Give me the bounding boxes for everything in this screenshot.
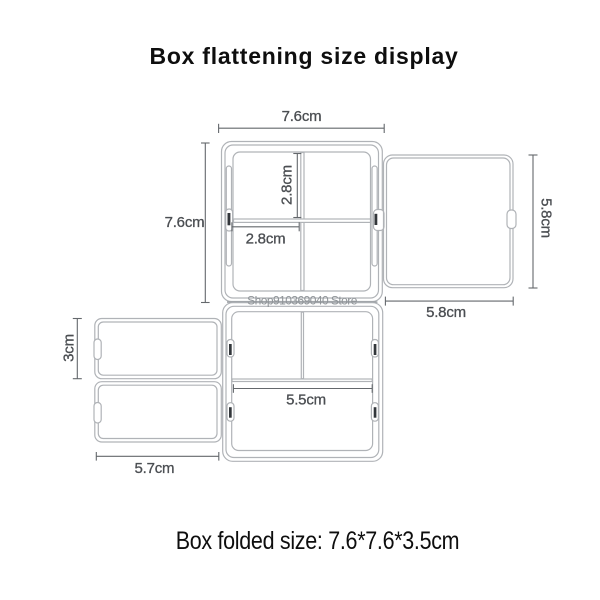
svg-text:3cm: 3cm [61,334,78,362]
svg-text:7.6cm: 7.6cm [165,214,205,231]
svg-text:5.8cm: 5.8cm [426,304,466,321]
svg-text:2.8cm: 2.8cm [246,231,286,248]
svg-text:7.6cm: 7.6cm [282,108,322,125]
svg-text:5.5cm: 5.5cm [286,392,326,409]
svg-text:2.8cm: 2.8cm [279,165,296,205]
svg-text:Box flattening size display: Box flattening size display [149,43,458,69]
svg-text:Shop910369040 Store: Shop910369040 Store [247,294,358,308]
svg-text:5.7cm: 5.7cm [134,460,174,477]
svg-text:5.8cm: 5.8cm [538,198,555,238]
svg-text:Box folded size: 7.6*7.6*3.5cm: Box folded size: 7.6*7.6*3.5cm [176,526,460,554]
